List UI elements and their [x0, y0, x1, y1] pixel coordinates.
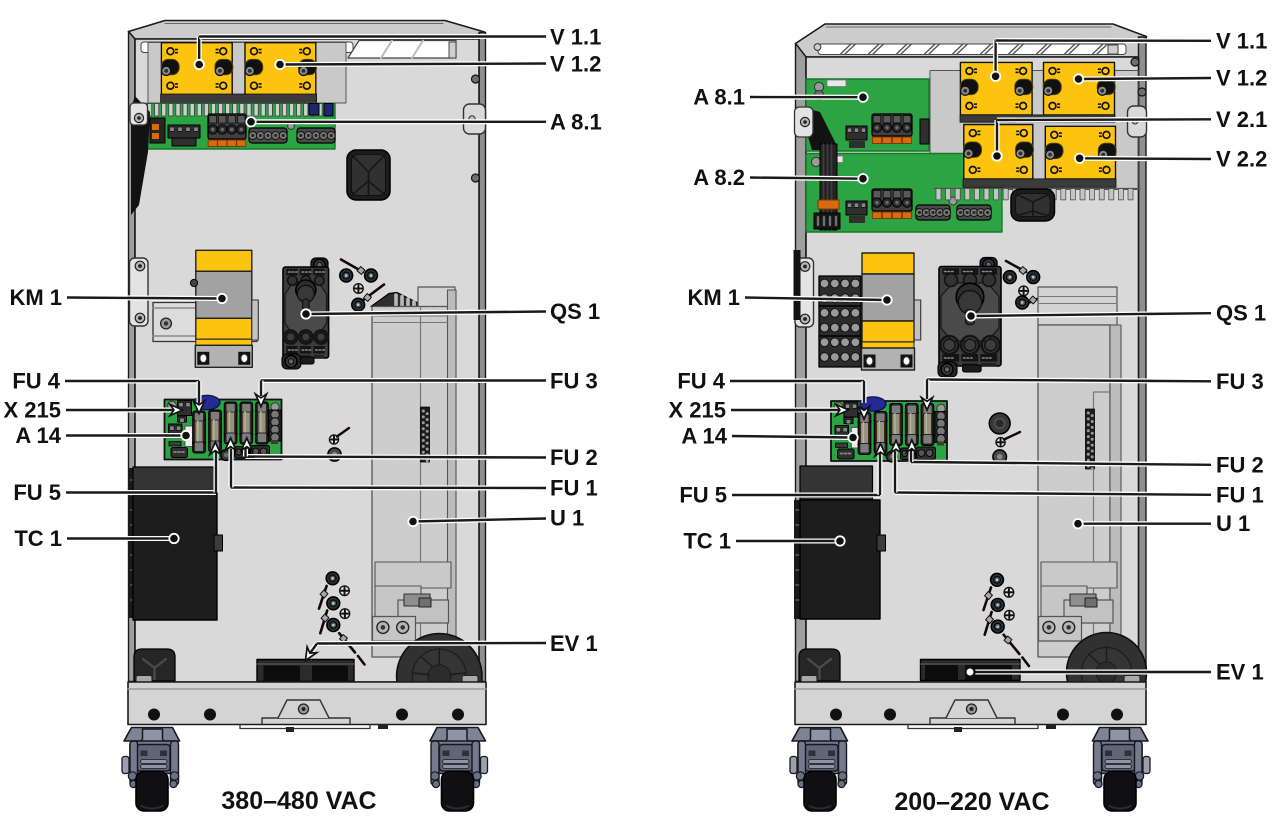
- svg-text:FU 3: FU 3: [550, 369, 598, 394]
- svg-text:QS 1: QS 1: [1216, 301, 1266, 326]
- svg-text:U 1: U 1: [550, 506, 584, 531]
- svg-text:FU 1: FU 1: [1216, 482, 1264, 507]
- svg-text:KM 1: KM 1: [9, 285, 62, 310]
- svg-text:V 2.1: V 2.1: [1216, 107, 1267, 132]
- svg-text:EV 1: EV 1: [1216, 660, 1264, 685]
- svg-text:380–480 VAC: 380–480 VAC: [221, 787, 376, 815]
- svg-text:FU 5: FU 5: [13, 480, 61, 505]
- svg-text:X 215: X 215: [4, 398, 62, 423]
- svg-text:V 1.2: V 1.2: [550, 52, 601, 77]
- svg-text:TC 1: TC 1: [14, 526, 62, 551]
- svg-text:FU 3: FU 3: [1216, 369, 1264, 394]
- svg-text:A 14: A 14: [681, 424, 727, 449]
- svg-text:FU 2: FU 2: [1216, 452, 1264, 477]
- svg-text:EV 1: EV 1: [550, 631, 598, 656]
- svg-text:200–220 VAC: 200–220 VAC: [894, 788, 1049, 816]
- svg-text:X 215: X 215: [669, 398, 727, 423]
- svg-text:V 1.2: V 1.2: [1216, 66, 1267, 91]
- svg-text:FU 1: FU 1: [550, 476, 598, 501]
- svg-text:A 8.1: A 8.1: [693, 85, 745, 110]
- svg-text:V 2.2: V 2.2: [1216, 147, 1267, 172]
- svg-text:V 1.1: V 1.1: [550, 25, 601, 50]
- svg-text:FU 2: FU 2: [550, 445, 598, 470]
- svg-text:U 1: U 1: [1216, 511, 1250, 536]
- svg-text:V 1.1: V 1.1: [1216, 29, 1267, 54]
- svg-text:KM 1: KM 1: [687, 285, 740, 310]
- svg-text:A 8.2: A 8.2: [693, 165, 745, 190]
- svg-text:FU 4: FU 4: [677, 369, 725, 394]
- svg-text:FU 4: FU 4: [12, 369, 60, 394]
- svg-text:QS 1: QS 1: [550, 299, 600, 324]
- svg-text:FU 5: FU 5: [679, 483, 727, 508]
- svg-text:A 8.1: A 8.1: [550, 110, 602, 135]
- svg-text:TC 1: TC 1: [683, 529, 731, 554]
- svg-text:A 14: A 14: [15, 423, 61, 448]
